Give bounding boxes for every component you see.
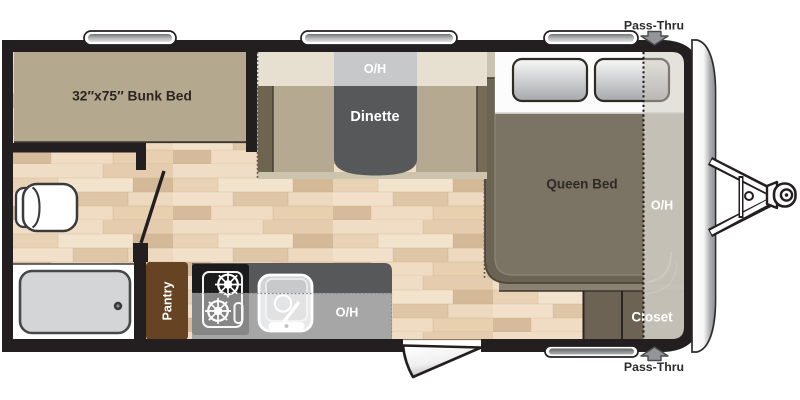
svg-text:Queen Bed: Queen Bed — [546, 177, 617, 192]
svg-text:Closet: Closet — [631, 310, 673, 325]
svg-text:O/H: O/H — [651, 199, 673, 213]
svg-text:Pass-Thru: Pass-Thru — [624, 360, 684, 374]
svg-text:32″x75″ Bunk Bed: 32″x75″ Bunk Bed — [72, 89, 192, 104]
svg-text:O/H: O/H — [336, 305, 359, 320]
svg-text:Pantry: Pantry — [161, 282, 175, 321]
svg-text:Pass-Thru: Pass-Thru — [624, 19, 684, 33]
svg-text:Dinette: Dinette — [350, 109, 399, 125]
svg-text:O/H: O/H — [364, 62, 386, 76]
